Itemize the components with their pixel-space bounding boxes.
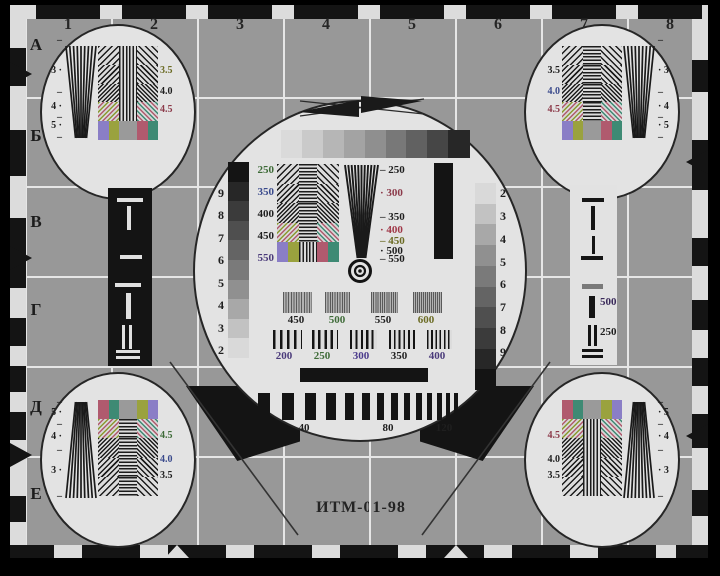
wedge-tick-label: – <box>658 36 678 46</box>
corner-patch <box>109 121 120 140</box>
corner-grating <box>601 458 622 477</box>
staircase-number: 2 <box>500 187 522 199</box>
wedge-tick-label: · 4 <box>658 102 678 112</box>
staircase-number: 5 <box>500 256 522 268</box>
grid-column-label: 8 <box>658 17 682 33</box>
resolution-label: 4.0 <box>534 455 560 465</box>
pulse-bar-label: 80 <box>374 423 402 434</box>
staircase-number: 6 <box>202 254 224 266</box>
pulse-mark <box>588 325 591 346</box>
wedge-tick-label: – <box>42 420 62 430</box>
staircase-step <box>475 287 496 308</box>
staircase-number: 8 <box>202 209 224 221</box>
pulse-bar <box>454 393 458 420</box>
castellation-black-segment <box>692 358 708 386</box>
corner-grating <box>119 458 137 477</box>
line-count-label: 350 <box>240 187 274 198</box>
fine-grating-label: 450 <box>280 315 312 326</box>
pulse-panel-label: 250 <box>600 327 624 338</box>
pulse-mark <box>126 293 131 319</box>
staircase-step <box>475 266 496 287</box>
corner-grating <box>119 438 137 457</box>
corner-grating <box>98 102 119 121</box>
pulse-mark <box>127 206 131 230</box>
castellation-strip-right <box>692 19 708 545</box>
corner-grating <box>98 419 119 438</box>
fine-grating-label: 550 <box>367 315 399 326</box>
center-grating <box>299 242 317 262</box>
castellation-black-segment <box>692 60 708 92</box>
corner-patch <box>148 400 159 419</box>
wedge-tick-label: · 4 <box>658 432 678 442</box>
wedge-tick-label: – <box>658 446 678 456</box>
corner-patch <box>573 121 584 140</box>
wedge-tick-label: 4 · <box>42 102 62 112</box>
long-black-bar <box>300 368 428 382</box>
corner-grating <box>601 419 622 438</box>
resolution-label: 4.0 <box>534 87 560 97</box>
staircase-number: 2 <box>202 344 224 356</box>
line-count-label: 250 <box>240 165 274 176</box>
corner-patch <box>573 400 584 419</box>
pulse-bar <box>345 393 354 420</box>
staircase-step <box>475 369 496 390</box>
wedge-tick-label: – <box>658 133 678 143</box>
line-count-label: 550 <box>240 253 274 264</box>
pulse-mark <box>115 283 141 287</box>
resolution-label: 4.5 <box>160 105 186 115</box>
line-count-label: 450 <box>240 231 274 242</box>
staircase-number: 9 <box>202 187 224 199</box>
pulse-bar <box>404 393 410 420</box>
pulse-bar <box>377 393 384 420</box>
corner-grating <box>562 46 583 65</box>
wedge-tick-label: – <box>42 36 62 46</box>
corner-grating <box>583 102 601 121</box>
staircase-step <box>475 245 496 266</box>
corner-grating <box>137 46 158 65</box>
castellation-black-segment <box>10 130 26 176</box>
corner-patch <box>583 121 601 140</box>
pulse-mark <box>582 355 603 358</box>
fine-grating-label: 600 <box>410 315 442 326</box>
pulse-mark <box>116 350 140 353</box>
center-grating <box>299 164 317 184</box>
pulse-mark <box>581 256 603 260</box>
grid-column-label: 5 <box>400 17 424 33</box>
corner-grating <box>119 419 137 438</box>
corner-grating <box>98 84 119 103</box>
fine-grating-block <box>325 292 350 313</box>
staircase-number: 7 <box>202 232 224 244</box>
corner-grating <box>98 46 119 65</box>
center-grating <box>277 203 299 223</box>
corner-patch <box>601 400 612 419</box>
pulse-mark <box>117 198 143 202</box>
center-grating <box>299 203 317 223</box>
wedge-tick-label: 3 · <box>42 66 62 76</box>
corner-grating <box>583 84 601 103</box>
corner-grating <box>601 65 622 84</box>
center-grating <box>277 223 299 243</box>
corner-patch <box>119 400 137 419</box>
corner-grating <box>119 477 137 496</box>
grayscale-strip-step <box>427 130 448 158</box>
staircase-number: 6 <box>500 278 522 290</box>
castellation-black-segment <box>10 412 26 440</box>
pulse-mark <box>589 296 595 318</box>
wedge-frequency-label: – 250 <box>380 165 422 176</box>
wedge-tick-label: · 3 <box>658 66 678 76</box>
resolution-label: 4.5 <box>160 431 186 441</box>
wedge-tick-label: · 3 <box>658 466 678 476</box>
staircase-number: 3 <box>202 322 224 334</box>
castellation-black-segment <box>676 545 708 558</box>
grayscale-strip-step <box>302 130 323 158</box>
corner-grating <box>601 84 622 103</box>
corner-grating <box>583 458 601 477</box>
resolution-label: 3.5 <box>160 66 186 76</box>
corner-grating <box>583 46 601 65</box>
pulse-panel-label: 500 <box>600 297 624 308</box>
pulse-bar <box>416 393 422 420</box>
staircase-step <box>228 338 249 358</box>
wedge-tick-label: 5 · <box>42 408 62 418</box>
coarse-grating-label: 350 <box>383 351 415 362</box>
grayscale-strip-step <box>406 130 427 158</box>
coarse-grating-block <box>427 330 452 349</box>
castellation-black-segment <box>512 545 570 558</box>
corner-grating <box>601 477 622 496</box>
corner-patch <box>612 400 623 419</box>
pulse-mark <box>591 206 595 230</box>
corner-grating <box>601 102 622 121</box>
corner-patch <box>137 400 148 419</box>
center-grating <box>317 203 339 223</box>
corner-grating <box>137 102 158 121</box>
pulse-bar <box>326 393 336 420</box>
corner-grating <box>583 438 601 457</box>
wedge-frequency-label: – 550 <box>380 254 422 265</box>
coarse-grating-label: 400 <box>421 351 453 362</box>
staircase-step <box>228 280 249 300</box>
wedge-tick-label: 5 · <box>42 121 62 131</box>
castellation-black-segment <box>692 238 708 266</box>
corner-patch <box>612 121 623 140</box>
corner-grating <box>601 438 622 457</box>
coarse-grating-block <box>350 330 377 349</box>
fine-grating-block <box>371 292 398 313</box>
resolution-label: 3.5 <box>160 471 186 481</box>
pulse-bar <box>437 393 442 420</box>
corner-grating <box>137 458 158 477</box>
corner-grating <box>583 65 601 84</box>
wedge-tick-label: · 5 <box>658 408 678 418</box>
pulse-mark <box>592 236 595 254</box>
fine-grating-block <box>283 292 312 313</box>
pulse-mark <box>582 284 603 289</box>
corner-patch <box>137 121 148 140</box>
wedge-tick-label: – <box>42 133 62 143</box>
pulse-mark <box>122 325 125 349</box>
wedge-tick-label: – <box>42 446 62 456</box>
corner-grating <box>137 477 158 496</box>
center-grating <box>317 164 339 184</box>
fine-grating-block <box>413 292 442 313</box>
wedge-frequency-label: – 350 <box>380 212 422 223</box>
line-count-label: 400 <box>240 209 274 220</box>
coarse-grating-block <box>312 330 338 349</box>
grid-column-label: 3 <box>228 17 252 33</box>
corner-grating <box>562 102 583 121</box>
pulse-bar <box>362 393 370 420</box>
fine-grating-label: 500 <box>321 315 353 326</box>
corner-patch <box>583 400 601 419</box>
center-grating <box>277 164 299 184</box>
pulse-bar <box>258 393 270 420</box>
pulse-bar <box>391 393 398 420</box>
staircase-number: 5 <box>202 277 224 289</box>
staircase-number: 9 <box>500 346 522 358</box>
castellation-black-segment <box>254 545 312 558</box>
pulse-mark <box>594 325 597 346</box>
tv-test-card: ИТМ-01-98 ©ОАО ВНИИТР 12345678АБВГДЕ–3 ·… <box>0 0 720 576</box>
card-title: ИТМ-01-98 <box>280 500 442 516</box>
corner-grating <box>137 65 158 84</box>
castellation-black-segment <box>10 318 26 346</box>
wedge-tick-label: 4 · <box>42 432 62 442</box>
grayscale-strip-step <box>281 130 302 158</box>
staircase-number: 8 <box>500 324 522 336</box>
grid-column-label: 1 <box>56 17 80 33</box>
corner-patch <box>109 400 120 419</box>
resolution-label: 4.5 <box>534 431 560 441</box>
resolution-label: 3.5 <box>534 66 560 76</box>
corner-grating <box>98 477 119 496</box>
pulse-bar <box>282 393 294 420</box>
corner-grating <box>98 65 119 84</box>
corner-grating <box>583 477 601 496</box>
center-patch <box>328 242 339 262</box>
corner-grating <box>601 46 622 65</box>
corner-patch <box>562 121 573 140</box>
staircase-step <box>475 307 496 328</box>
wedge-tick-label: – <box>658 88 678 98</box>
staircase-step <box>228 299 249 319</box>
corner-grating <box>562 419 583 438</box>
wedge-tick-label: 3 · <box>42 466 62 476</box>
grayscale-strip-step <box>386 130 407 158</box>
resolution-label: 4.0 <box>160 87 186 97</box>
corner-grating <box>583 419 601 438</box>
pulse-mark <box>129 325 132 349</box>
corner-grating <box>137 419 158 438</box>
grayscale-strip-step <box>448 130 469 158</box>
center-patch <box>317 242 328 262</box>
coarse-grating-block <box>389 330 415 349</box>
corner-patch <box>562 400 573 419</box>
grid-column-label: 4 <box>314 17 338 33</box>
corner-grating <box>119 46 137 65</box>
corner-grating <box>98 438 119 457</box>
pulse-bar <box>427 393 432 420</box>
corner-grating <box>562 477 583 496</box>
wedge-tick-label: – <box>42 88 62 98</box>
corner-grating <box>119 84 137 103</box>
corner-grating <box>562 65 583 84</box>
center-grating <box>277 184 299 204</box>
corner-grating <box>562 458 583 477</box>
grayscale-strip-step <box>323 130 344 158</box>
center-grating <box>299 184 317 204</box>
pulse-bar-label: 40 <box>290 423 318 434</box>
staircase-number: 4 <box>202 299 224 311</box>
wedge-tick-label: · 5 <box>658 121 678 131</box>
staircase-step <box>475 349 496 370</box>
center-grating <box>317 184 339 204</box>
pulse-bar <box>446 393 450 420</box>
resolution-label: 4.0 <box>160 455 186 465</box>
center-patch <box>277 242 288 262</box>
castellation-black-segment <box>10 496 26 522</box>
grayscale-strip-step <box>344 130 365 158</box>
corner-grating <box>119 65 137 84</box>
grid-row-label: Г <box>26 301 46 318</box>
corner-grating <box>562 84 583 103</box>
staircase-step <box>228 319 249 339</box>
castellation-black-segment <box>10 366 26 392</box>
staircase-step <box>475 204 496 225</box>
coarse-grating-label: 250 <box>306 351 338 362</box>
corner-grating <box>119 102 137 121</box>
corner-patch <box>601 121 612 140</box>
center-grating <box>299 223 317 243</box>
corner-patch <box>98 121 109 140</box>
pulse-mark <box>582 349 603 352</box>
castellation-black-segment <box>692 490 708 516</box>
wedge-tick-label: – <box>42 492 62 502</box>
coarse-grating-label: 200 <box>268 351 300 362</box>
grayscale-strip-step <box>365 130 386 158</box>
black-reference-bar <box>434 163 453 259</box>
corner-patch <box>119 121 137 140</box>
staircase-step <box>475 183 496 204</box>
pulse-mark <box>582 198 604 202</box>
castellation-black-segment <box>692 300 708 330</box>
castellation-black-segment <box>10 545 54 558</box>
staircase-step <box>475 224 496 245</box>
wedge-frequency-label: · 400 <box>380 225 422 236</box>
pulse-mark <box>116 356 140 359</box>
corner-grating <box>137 84 158 103</box>
wedge-tick-label: – <box>658 420 678 430</box>
pulse-bar <box>305 393 316 420</box>
corner-grating <box>98 458 119 477</box>
corner-patch <box>148 121 159 140</box>
staircase-number: 3 <box>500 210 522 222</box>
corner-grating <box>137 438 158 457</box>
staircase-number: 4 <box>500 233 522 245</box>
coarse-grating-label: 300 <box>345 351 377 362</box>
resolution-label: 4.5 <box>534 105 560 115</box>
center-grating <box>317 223 339 243</box>
pulse-bar-label: 120 <box>430 423 458 434</box>
pulse-mark <box>120 255 142 259</box>
staircase-number: 7 <box>500 301 522 313</box>
wedge-frequency-label: · 300 <box>380 188 422 199</box>
castellation-black-segment <box>340 545 398 558</box>
resolution-label: 3.5 <box>534 471 560 481</box>
wedge-tick-label: – <box>658 492 678 502</box>
corner-grating <box>562 438 583 457</box>
staircase-step <box>475 328 496 349</box>
grid-row-label: В <box>26 213 46 230</box>
grid-column-label: 6 <box>486 17 510 33</box>
center-patch <box>288 242 299 262</box>
coarse-grating-block <box>273 330 302 349</box>
corner-patch <box>98 400 109 419</box>
